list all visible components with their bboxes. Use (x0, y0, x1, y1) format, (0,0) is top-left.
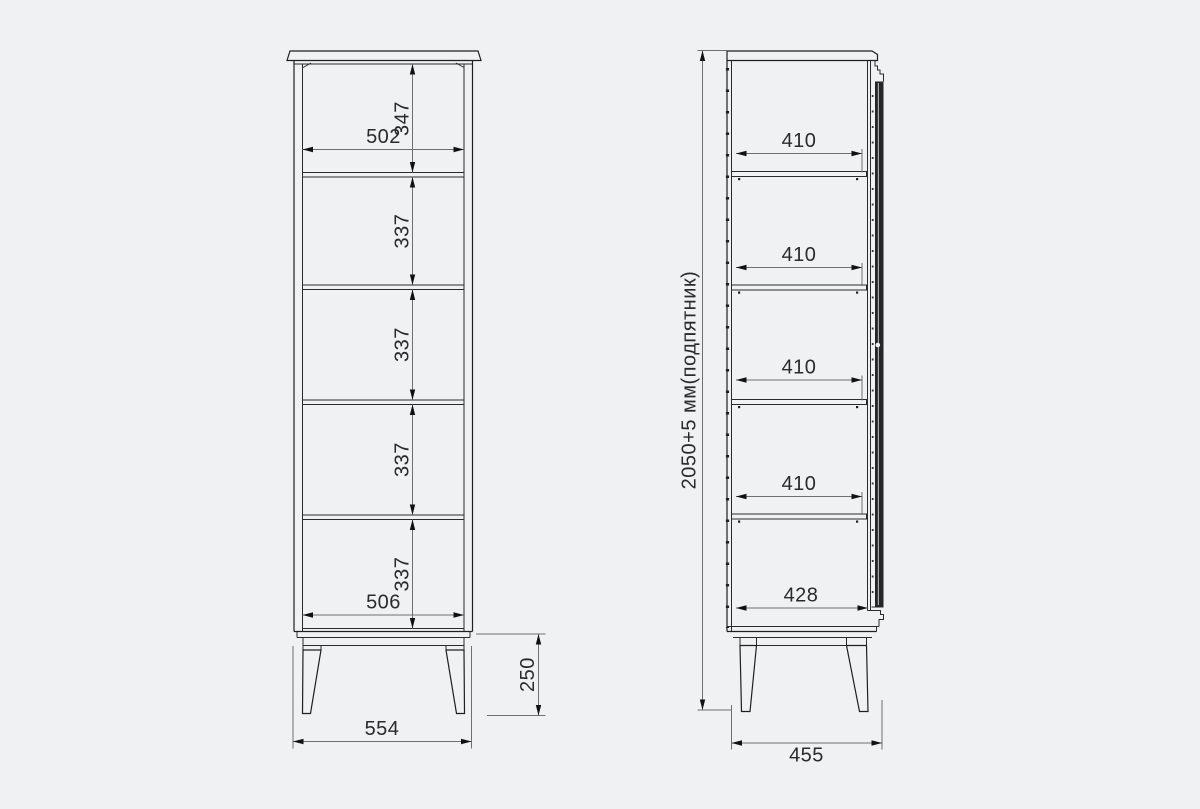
dim-label: 410 (782, 244, 817, 266)
drawing-background (0, 0, 1200, 809)
dim-label: 428 (784, 585, 819, 607)
dim-label: 506 (366, 592, 401, 614)
dim-label: 410 (782, 473, 817, 495)
furniture-dimension-drawing: 347 502 337 337 337 (0, 0, 1200, 809)
door-hinge-mark (876, 343, 881, 348)
dim-label: 337 (392, 327, 414, 362)
dim-label: 2050+5 мм(подпятник) (679, 271, 701, 490)
dim-label: 337 (392, 557, 414, 592)
dim-label: 455 (789, 745, 824, 767)
dim-label: 410 (782, 357, 817, 379)
dim-label: 554 (365, 718, 400, 740)
dim-label: 410 (782, 130, 817, 152)
dim-label: 502 (366, 126, 401, 148)
dim-label: 250 (517, 657, 539, 692)
dim-label: 337 (392, 214, 414, 249)
dim-label: 337 (392, 442, 414, 477)
